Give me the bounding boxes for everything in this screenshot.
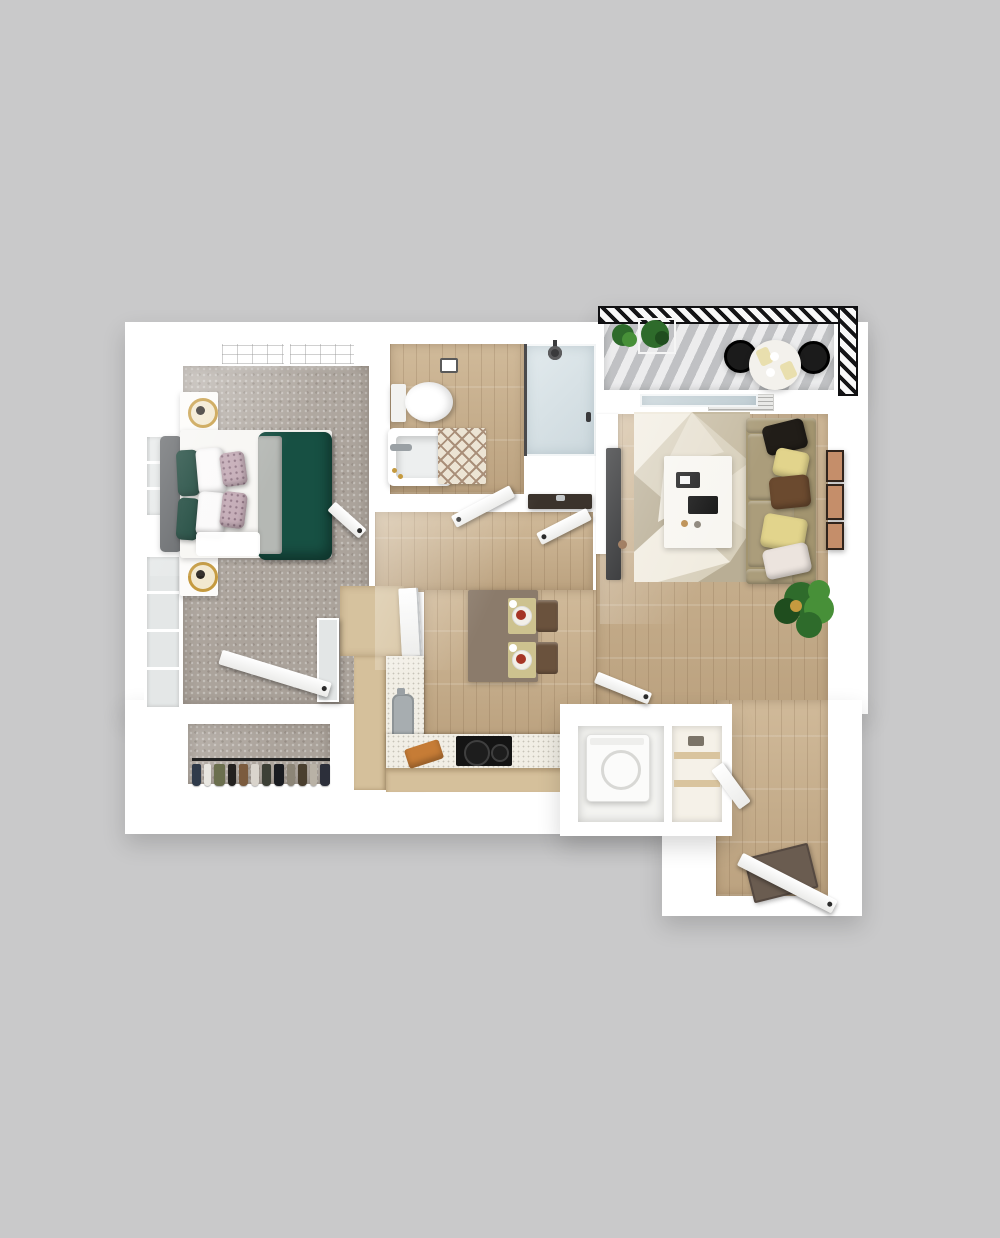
ceiling-light: [290, 344, 354, 364]
bed-blanket-runner: [258, 436, 282, 554]
door-handle: [356, 527, 363, 534]
door-handle: [826, 901, 833, 908]
door-handle: [455, 516, 462, 523]
table-decor: [694, 521, 701, 528]
table-decor: [681, 520, 688, 527]
balcony-planter-leaf: [655, 331, 669, 345]
table-lamp-shade: [196, 570, 205, 579]
bathtub-knob: [398, 474, 403, 479]
dining-chair: [536, 642, 558, 674]
toilet-paper-holder: [440, 358, 458, 373]
cooktop-burner: [464, 740, 490, 766]
bathtub-faucet: [390, 444, 412, 451]
hanging-garment: [298, 764, 307, 786]
hanging-garment: [251, 764, 258, 786]
floorplan-image: [0, 0, 1000, 1238]
bath-rug: [438, 428, 486, 484]
shower-head: [548, 346, 562, 360]
window-mullion: [147, 629, 179, 632]
vanity-faucet: [556, 495, 565, 501]
balcony-railing-top: [598, 306, 858, 324]
pantry-door: [398, 588, 422, 657]
storage-shelf: [674, 780, 720, 787]
balcony-plate: [770, 352, 779, 361]
balcony-railing-right: [838, 306, 858, 396]
window-mullion: [147, 591, 179, 594]
ceiling-light: [222, 344, 284, 364]
potted-plant-leaf: [808, 580, 830, 602]
storage-item: [688, 736, 704, 746]
washer-lid-ring: [601, 750, 641, 790]
hanging-garment: [287, 764, 295, 786]
wall-frame: [826, 484, 844, 520]
hanging-garment: [204, 764, 211, 786]
shower-handle: [586, 412, 591, 422]
hanging-garment: [239, 764, 249, 786]
cooktop-burner: [491, 744, 509, 762]
bed-pillow-accent: [219, 491, 248, 530]
sliding-glass-door: [640, 394, 758, 407]
wall-frame: [826, 522, 844, 550]
saucer: [509, 600, 517, 608]
pantry-floor: [340, 586, 404, 656]
bed-pillow-accent: [219, 450, 248, 487]
potted-plant-leaf: [796, 612, 822, 638]
balcony-plant-leaf: [622, 332, 637, 347]
balcony-plate: [766, 368, 775, 377]
bedroom-window: [144, 554, 182, 710]
bathtub-knob: [392, 468, 397, 473]
hanging-garment: [214, 764, 225, 786]
toilet-tank: [391, 384, 406, 422]
shower-glass: [524, 344, 596, 456]
decor-knob: [618, 540, 627, 549]
saucer: [509, 644, 517, 652]
hanging-garment: [320, 764, 330, 786]
plate-food: [516, 610, 526, 620]
closet-garments: [192, 760, 330, 786]
bed-sheet-fold: [196, 532, 260, 556]
kitchen-cabinet-left: [354, 656, 386, 790]
door-handle: [321, 685, 327, 691]
washer-controls: [590, 738, 644, 745]
bathtub-basin: [396, 436, 444, 478]
tablet: [688, 496, 718, 514]
hanging-garment: [310, 764, 317, 786]
hanging-garment: [228, 764, 236, 786]
window-mullion: [147, 667, 179, 670]
balcony-chair: [797, 341, 830, 374]
door-handle: [643, 693, 650, 700]
door-handle: [541, 533, 548, 540]
plate-food: [516, 654, 526, 664]
wall-frame: [826, 450, 844, 482]
shower-frame: [524, 344, 527, 456]
remote-card: [680, 476, 690, 484]
toilet-bowl: [405, 382, 453, 422]
hanging-garment: [274, 764, 285, 786]
hanging-garment: [262, 764, 271, 786]
kitchen-cabinet-bottom: [386, 768, 566, 792]
plant-pot: [790, 600, 802, 612]
sink-faucet: [397, 688, 405, 695]
hanging-garment: [192, 764, 201, 786]
dining-chair: [536, 600, 558, 632]
storage-shelf: [674, 752, 720, 759]
tv: [606, 448, 621, 580]
table-lamp-shade: [196, 406, 205, 415]
throw-pillow-brown: [768, 474, 811, 510]
